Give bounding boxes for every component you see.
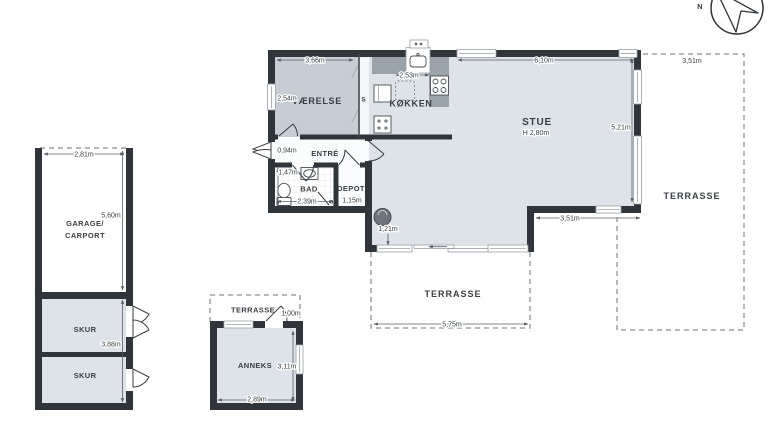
anneks-label: ANNEKS	[238, 361, 272, 370]
washbasin-bowl-icon	[304, 170, 316, 178]
shower-label: s	[330, 199, 334, 206]
skur-door-leaf	[133, 369, 149, 387]
east-terrace-label: TERRASSE	[663, 191, 720, 201]
bad-depth-dim: 1,47m	[278, 170, 298, 177]
depot-label: DEPOT	[337, 184, 365, 193]
skur-bottom-label: SKUR	[74, 371, 97, 380]
stue-south-wall-dim: 3,51m	[560, 216, 580, 223]
main-house: VÆRELSE S KØKKEN STUE H 2,80m ENTRÉ BAD …	[253, 40, 642, 252]
wood-stove	[374, 209, 391, 226]
vaerelse-depth-dim: 2,54m	[277, 96, 297, 103]
garage-label-line2: CARPORT	[65, 231, 105, 240]
kitchen-sink	[406, 40, 430, 73]
outdoor-fixture-dot	[420, 43, 422, 45]
vaerelse-label: VÆRELSE	[292, 96, 342, 106]
stue-ceiling-label: H 2,80m	[523, 130, 550, 137]
bad-width-dim: 2,39m	[297, 199, 317, 206]
stue-label: STUE	[522, 117, 552, 128]
south-terrace-width-dim: 5,75m	[442, 322, 462, 329]
garage-building: GARAGE/ CARPORT 2,81m 5,60m SKUR 3,88m S…	[35, 148, 149, 410]
skur-bottom-floor	[42, 357, 126, 403]
skur-top-label: SKUR	[74, 325, 97, 334]
north-label: N	[697, 2, 703, 11]
oven-knob-icon	[378, 120, 380, 122]
floor-plan-page: VÆRELSE S KØKKEN STUE H 2,80m ENTRÉ BAD …	[0, 0, 768, 422]
sliding-door-panel	[448, 249, 488, 252]
north-arrow-icon	[716, 0, 758, 32]
south-terrace-label: TERRASSE	[424, 289, 481, 299]
anneks-building: TERRASSE 1,00m ANNEKS 3,11m 2,89m	[210, 295, 303, 410]
oven-knob-icon	[385, 127, 387, 129]
stue-depth-dim: 5,21m	[611, 125, 631, 132]
toilet-bowl-icon	[278, 183, 290, 197]
oven-icon	[374, 116, 391, 133]
bad-label: BAD	[300, 185, 318, 194]
skur-depth-dim: 3,88m	[101, 342, 121, 349]
counter-top-right	[428, 57, 449, 74]
vaerelse-width-dim: 3,66m	[305, 58, 325, 65]
burner-icon	[433, 88, 438, 93]
koekken-label: KØKKEN	[389, 99, 432, 109]
sink-faucet-icon	[417, 53, 419, 55]
anneks-width-dim: 2,89m	[247, 397, 267, 404]
front-door-leaf	[253, 150, 271, 159]
garage-width-dim: 2,81m	[74, 152, 94, 159]
east-terrace-width-dim: 3,51m	[682, 58, 702, 65]
koekken-width-dim: 2,53m	[399, 73, 419, 80]
oven-knob-icon	[385, 120, 387, 122]
entre-width-dim: 0,94m	[277, 148, 297, 155]
stove-clearance-dim: 1,21m	[378, 226, 398, 233]
anneks-depth-dim: 3,11m	[278, 364, 297, 371]
oven-knob-icon	[378, 127, 380, 129]
outdoor-fixture-dot	[415, 43, 417, 45]
entre-label: ENTRÉ	[311, 149, 338, 158]
burner-icon	[441, 88, 446, 93]
stue-width-dim: 6,10m	[534, 58, 554, 65]
outdoor-fixture-icon	[410, 40, 428, 48]
burner-icon	[441, 79, 446, 84]
closet-label: S	[361, 97, 366, 104]
anneks-terrace-depth-dim: 1,00m	[281, 311, 301, 318]
counter-top-left	[372, 57, 406, 74]
anneks-terrace-label: TERRASSE	[231, 306, 275, 315]
burner-icon	[433, 79, 438, 84]
compass: N	[697, 0, 763, 34]
garage-depth-dim: 5,60m	[101, 213, 121, 220]
depot-width-dim: 1,15m	[342, 198, 362, 205]
stove-icon	[431, 76, 449, 95]
south-terrace: TERRASSE 5,75m	[371, 252, 530, 329]
floor-plan-drawing: VÆRELSE S KØKKEN STUE H 2,80m ENTRÉ BAD …	[0, 0, 768, 422]
skur-door-leaf	[133, 320, 149, 338]
sink-bowl-icon	[410, 56, 426, 67]
wood-stove-icon	[374, 209, 391, 226]
garage-label-line1: GARAGE/	[66, 219, 104, 228]
closet-floor	[359, 54, 369, 137]
